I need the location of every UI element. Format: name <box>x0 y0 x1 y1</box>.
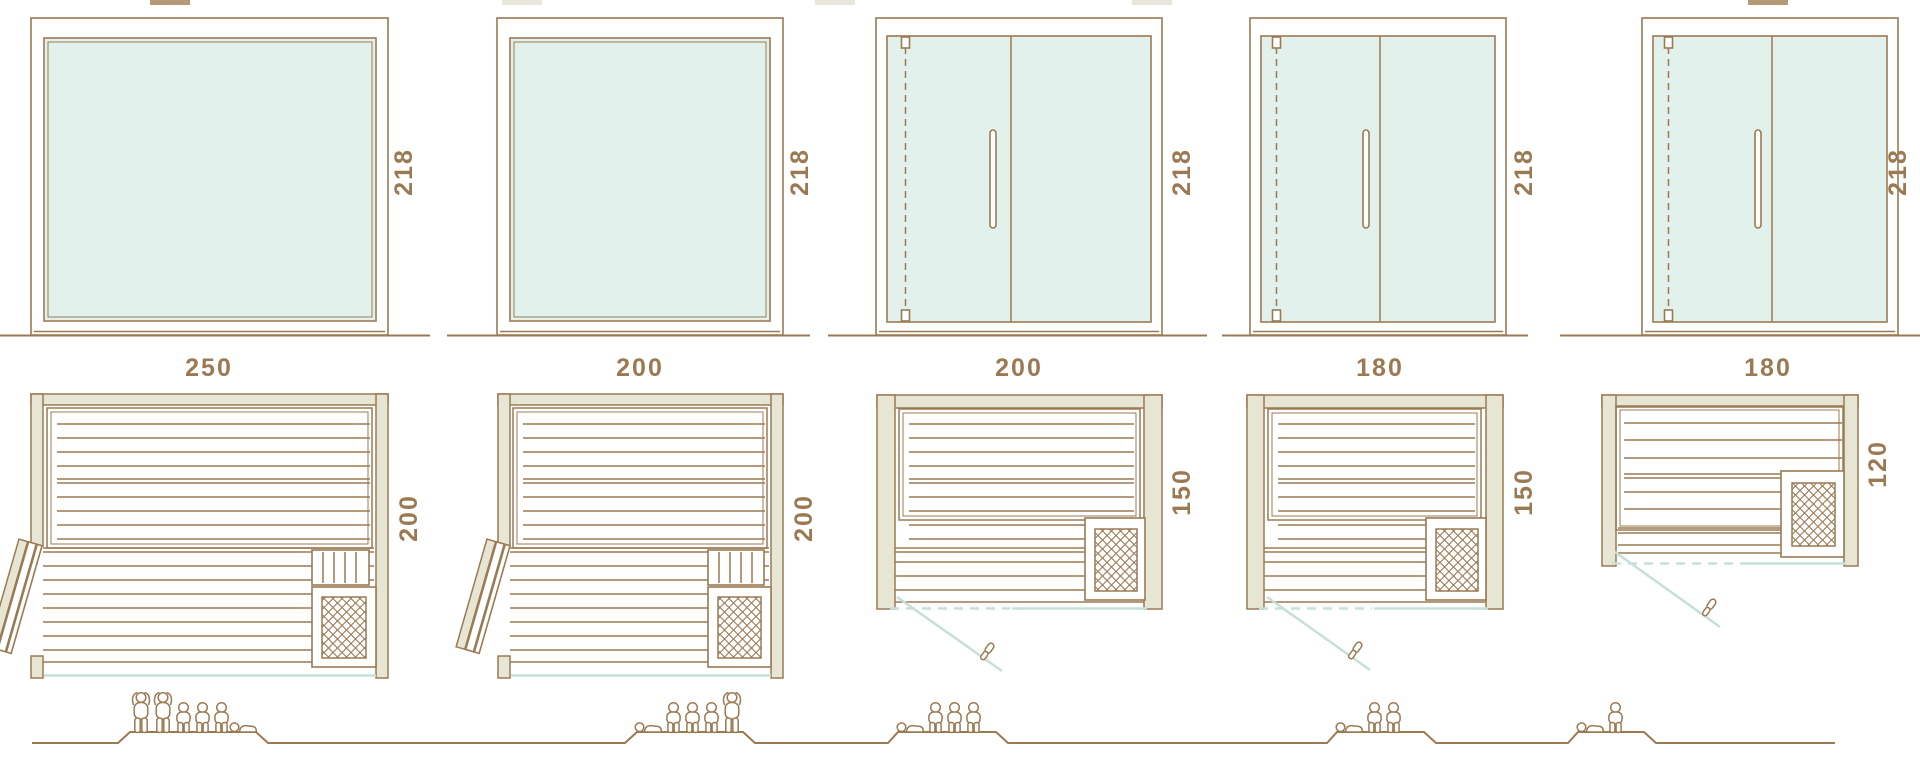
person-sitting-icon <box>929 703 942 733</box>
bench-step <box>708 550 764 585</box>
person-sitting-icon <box>948 703 961 733</box>
door-handle-icon <box>1755 130 1761 228</box>
heater-icon <box>312 587 376 667</box>
person-lying-icon <box>897 723 923 732</box>
person-sitting-icon <box>705 703 718 733</box>
person-sitting-icon <box>967 703 980 733</box>
floor-plan-3 <box>877 395 1162 671</box>
hinge-icon <box>1665 310 1673 321</box>
height-dimension-label: 218 <box>390 148 418 196</box>
front-elevation-3 <box>876 18 1162 335</box>
door-handle-icon <box>1363 130 1369 228</box>
depth-dimension-label: 150 <box>1168 468 1196 516</box>
wall <box>498 394 783 405</box>
width-dimension-label: 200 <box>616 354 664 382</box>
front-elevation-1 <box>31 18 388 335</box>
capacity-group-3 <box>897 703 980 733</box>
height-dimension-label: 218 <box>1168 148 1196 196</box>
front-elevation-4 <box>1250 18 1506 335</box>
heater-icon <box>1426 518 1486 600</box>
floor-plan-5 <box>1602 395 1858 627</box>
person-sitting-icon <box>667 703 680 733</box>
wall <box>1602 395 1616 566</box>
open-door-leaf <box>0 539 42 653</box>
capacity-group-4 <box>1336 703 1400 733</box>
person-sitting-icon <box>215 703 228 733</box>
door-swing-line <box>1267 597 1370 670</box>
door-post <box>498 656 510 678</box>
wall <box>31 394 388 405</box>
floor-plan-1 <box>0 394 388 678</box>
person-sitting-icon <box>1609 703 1622 733</box>
width-dimension-label: 180 <box>1744 354 1792 382</box>
depth-dimension-label: 200 <box>790 494 818 542</box>
door-post <box>31 656 43 678</box>
open-door-leaf <box>456 539 510 653</box>
person-sitting-icon <box>177 703 190 733</box>
person-sitting-icon <box>1368 703 1381 733</box>
person-standing-icon <box>723 693 740 733</box>
cropped-top-artifacts <box>150 0 1788 5</box>
wall <box>498 394 510 546</box>
person-lying-icon <box>1336 723 1362 732</box>
height-dimension-label: 218 <box>1884 148 1912 196</box>
person-lying-icon <box>230 723 256 732</box>
width-dimension-label: 250 <box>185 354 233 382</box>
width-dimension-label: 180 <box>1356 354 1404 382</box>
front-elevation-2 <box>497 18 783 335</box>
glass-panel <box>44 38 376 321</box>
hinge-icon <box>1665 37 1673 48</box>
capacity-group-1 <box>132 693 256 733</box>
width-dimension-label: 200 <box>995 354 1043 382</box>
wall <box>877 395 895 609</box>
door-handle-icon <box>979 642 995 661</box>
heater-icon <box>708 587 771 667</box>
wall <box>1247 395 1264 609</box>
heater-icon <box>1781 471 1844 557</box>
person-sitting-icon <box>1387 703 1400 733</box>
glass-door <box>1653 36 1887 322</box>
bench-step <box>312 550 369 585</box>
wall <box>1602 395 1858 407</box>
door-handle-icon <box>1701 598 1717 617</box>
wall <box>31 394 43 546</box>
hinge-icon <box>1273 310 1281 321</box>
person-sitting-icon <box>196 703 209 733</box>
person-sitting-icon <box>686 703 699 733</box>
sauna-size-diagram: 218 218 218 218 218 250 200 200 180 180 <box>0 0 1920 770</box>
wall <box>1144 395 1162 609</box>
wall <box>1486 395 1503 609</box>
wall <box>376 394 388 678</box>
person-lying-icon <box>635 723 661 732</box>
wall <box>771 394 783 678</box>
person-standing-icon <box>154 693 171 733</box>
front-elevation-5 <box>1642 18 1898 335</box>
glass-panel <box>510 38 770 321</box>
depth-dimension-label: 120 <box>1864 440 1892 488</box>
door-handle-icon <box>990 130 996 228</box>
person-lying-icon <box>1577 723 1603 732</box>
floor-plan-4 <box>1247 395 1503 670</box>
person-standing-icon <box>132 693 149 733</box>
hinge-icon <box>902 310 910 321</box>
door-handle-icon <box>1347 641 1363 660</box>
hinge-icon <box>902 37 910 48</box>
floor-plan-2 <box>456 394 783 678</box>
capacity-group-2 <box>635 693 740 733</box>
height-dimension-label: 218 <box>786 148 814 196</box>
heater-icon <box>1085 518 1145 600</box>
wall <box>1247 395 1503 408</box>
height-dimension-label: 218 <box>1510 148 1538 196</box>
capacity-ground-line <box>32 732 1835 743</box>
hinge-icon <box>1273 37 1281 48</box>
glass-door <box>887 36 1151 322</box>
capacity-group-5 <box>1577 703 1622 733</box>
wall <box>877 395 1162 408</box>
wall <box>1844 395 1858 566</box>
depth-dimension-label: 200 <box>395 494 423 542</box>
depth-dimension-label: 150 <box>1510 468 1538 516</box>
glass-door <box>1261 36 1495 322</box>
